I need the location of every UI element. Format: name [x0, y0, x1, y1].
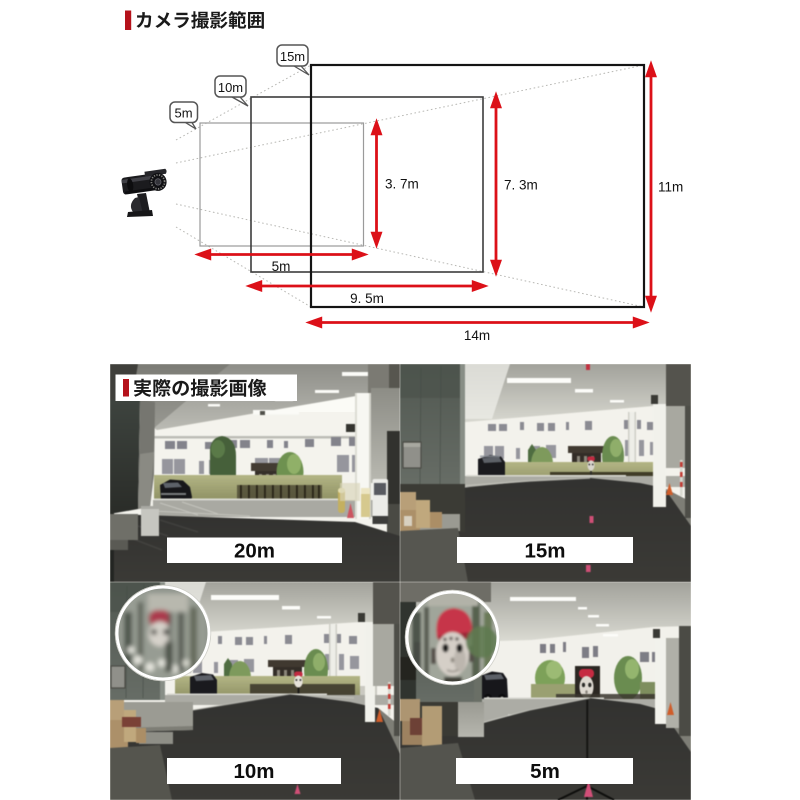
svg-text:3. 7m: 3. 7m: [385, 177, 419, 192]
svg-text:5m: 5m: [530, 760, 560, 783]
svg-text:5m: 5m: [174, 106, 192, 121]
svg-text:15m: 15m: [524, 540, 565, 563]
svg-text:15m: 15m: [280, 49, 305, 64]
svg-text:10m: 10m: [233, 760, 274, 783]
svg-text:11m: 11m: [658, 180, 683, 195]
svg-text:14m: 14m: [464, 328, 490, 343]
svg-text:9. 5m: 9. 5m: [350, 291, 384, 306]
svg-text:7. 3m: 7. 3m: [504, 178, 538, 193]
svg-text:5m: 5m: [272, 259, 291, 274]
svg-text:10m: 10m: [218, 80, 243, 95]
svg-text:20m: 20m: [234, 540, 275, 563]
